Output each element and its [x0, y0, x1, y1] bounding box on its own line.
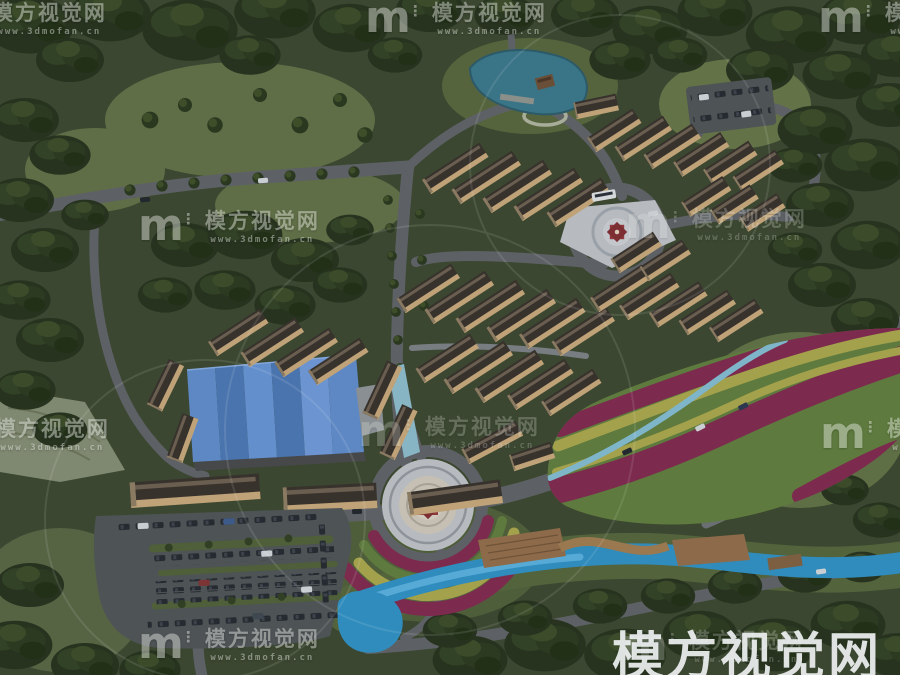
plaza-star-icon [607, 222, 627, 242]
parking-lot [94, 508, 351, 649]
render-scene [0, 0, 900, 675]
masterplan-aerial-render: m⋮ 模方视觉网www.3dmofan.cn m⋮ 模方视觉网www.3dmof… [0, 0, 900, 675]
